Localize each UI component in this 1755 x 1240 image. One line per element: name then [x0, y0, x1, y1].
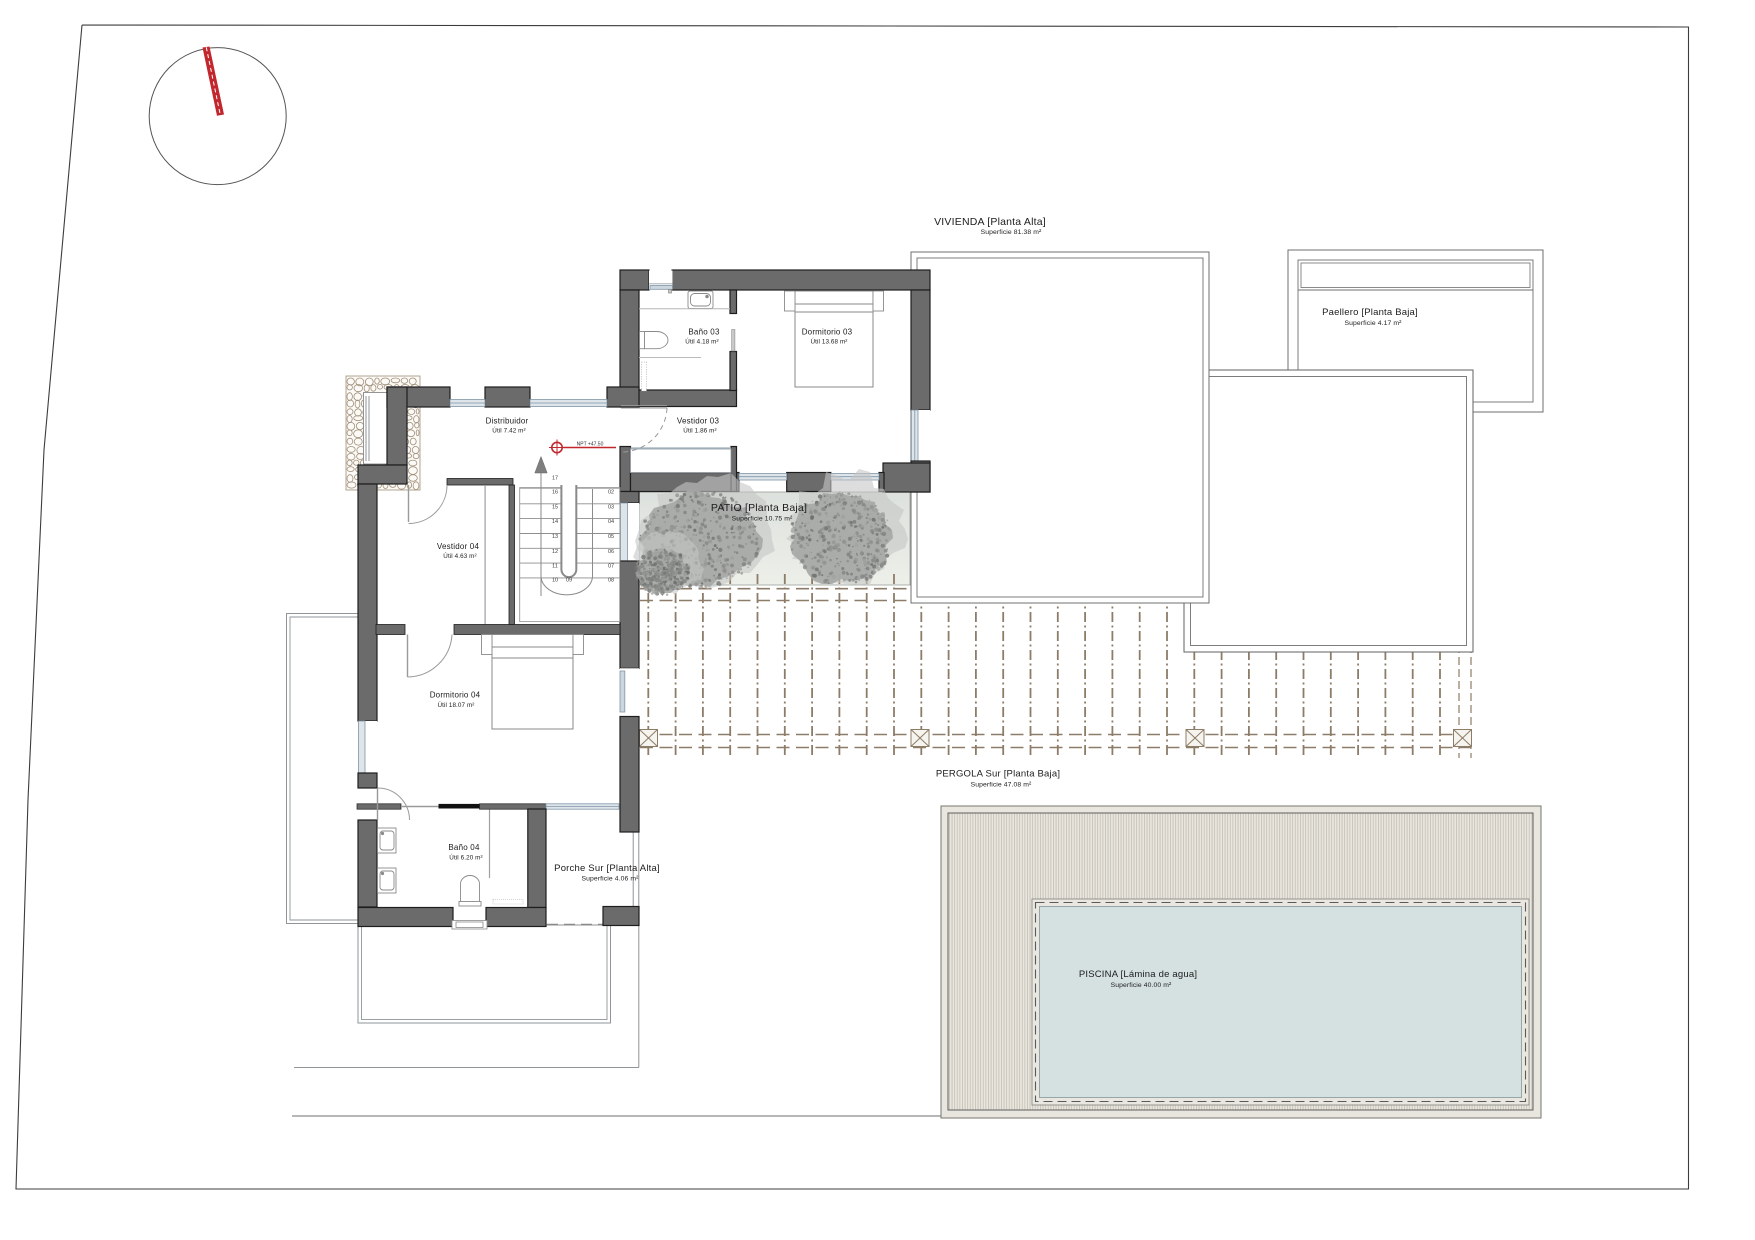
svg-text:12: 12 [552, 549, 558, 555]
svg-text:11: 11 [552, 564, 558, 570]
svg-text:03: 03 [608, 504, 614, 510]
svg-text:Baño 03: Baño 03 [688, 328, 720, 337]
svg-text:Útil 13.68 m²: Útil 13.68 m² [811, 337, 848, 346]
svg-text:Vestidor 03: Vestidor 03 [677, 417, 720, 426]
svg-text:Útil 4.18 m²: Útil 4.18 m² [685, 337, 718, 346]
svg-text:07: 07 [608, 564, 614, 570]
svg-text:13: 13 [552, 534, 558, 540]
svg-text:NPT +47.50: NPT +47.50 [577, 442, 604, 448]
svg-text:Útil 1.86 m²: Útil 1.86 m² [683, 426, 716, 435]
svg-text:04: 04 [608, 519, 614, 525]
svg-text:Vestidor 04: Vestidor 04 [437, 542, 480, 551]
svg-text:17: 17 [552, 476, 558, 482]
svg-text:Paellero [Planta Baja]: Paellero [Planta Baja] [1322, 307, 1418, 318]
svg-text:Útil 7.42 m²: Útil 7.42 m² [492, 426, 525, 435]
svg-text:VIVIENDA [Planta Alta]: VIVIENDA [Planta Alta] [934, 216, 1046, 228]
svg-text:Dormitorio 03: Dormitorio 03 [802, 328, 853, 337]
svg-text:Distribuidor: Distribuidor [486, 417, 529, 426]
svg-text:Porche Sur [Planta Alta]: Porche Sur [Planta Alta] [554, 863, 660, 874]
svg-text:Útil 4.63 m²: Útil 4.63 m² [443, 551, 476, 560]
svg-text:14: 14 [552, 519, 558, 525]
svg-text:Superficie 81.38 m²: Superficie 81.38 m² [981, 229, 1042, 236]
svg-text:16: 16 [552, 490, 558, 496]
svg-text:Superficie 10.75 m²: Superficie 10.75 m² [732, 516, 793, 523]
svg-text:Útil 18.07 m²: Útil 18.07 m² [438, 700, 475, 709]
svg-text:Superficie 40.00 m²: Superficie 40.00 m² [1111, 982, 1172, 989]
svg-text:Dormitorio 04: Dormitorio 04 [430, 691, 481, 700]
svg-text:09: 09 [566, 578, 572, 584]
svg-text:Baño 04: Baño 04 [448, 843, 480, 852]
svg-text:Superficie 4.06 m²: Superficie 4.06 m² [582, 876, 640, 883]
svg-text:Superficie 47.08 m²: Superficie 47.08 m² [971, 782, 1032, 789]
svg-text:15: 15 [552, 504, 558, 510]
svg-text:PERGOLA Sur [Planta Baja]: PERGOLA Sur [Planta Baja] [936, 769, 1060, 780]
svg-text:08: 08 [608, 578, 614, 584]
svg-text:02: 02 [608, 490, 614, 496]
svg-text:05: 05 [608, 534, 614, 540]
svg-text:10: 10 [552, 578, 558, 584]
svg-text:06: 06 [608, 549, 614, 555]
svg-text:Superficie 4.17 m²: Superficie 4.17 m² [1345, 320, 1403, 327]
svg-text:Útil 6.20 m²: Útil 6.20 m² [449, 853, 482, 862]
svg-text:PATIO [Planta Baja]: PATIO [Planta Baja] [711, 502, 807, 514]
svg-text:PISCINA [Lámina de agua]: PISCINA [Lámina de agua] [1079, 969, 1197, 980]
